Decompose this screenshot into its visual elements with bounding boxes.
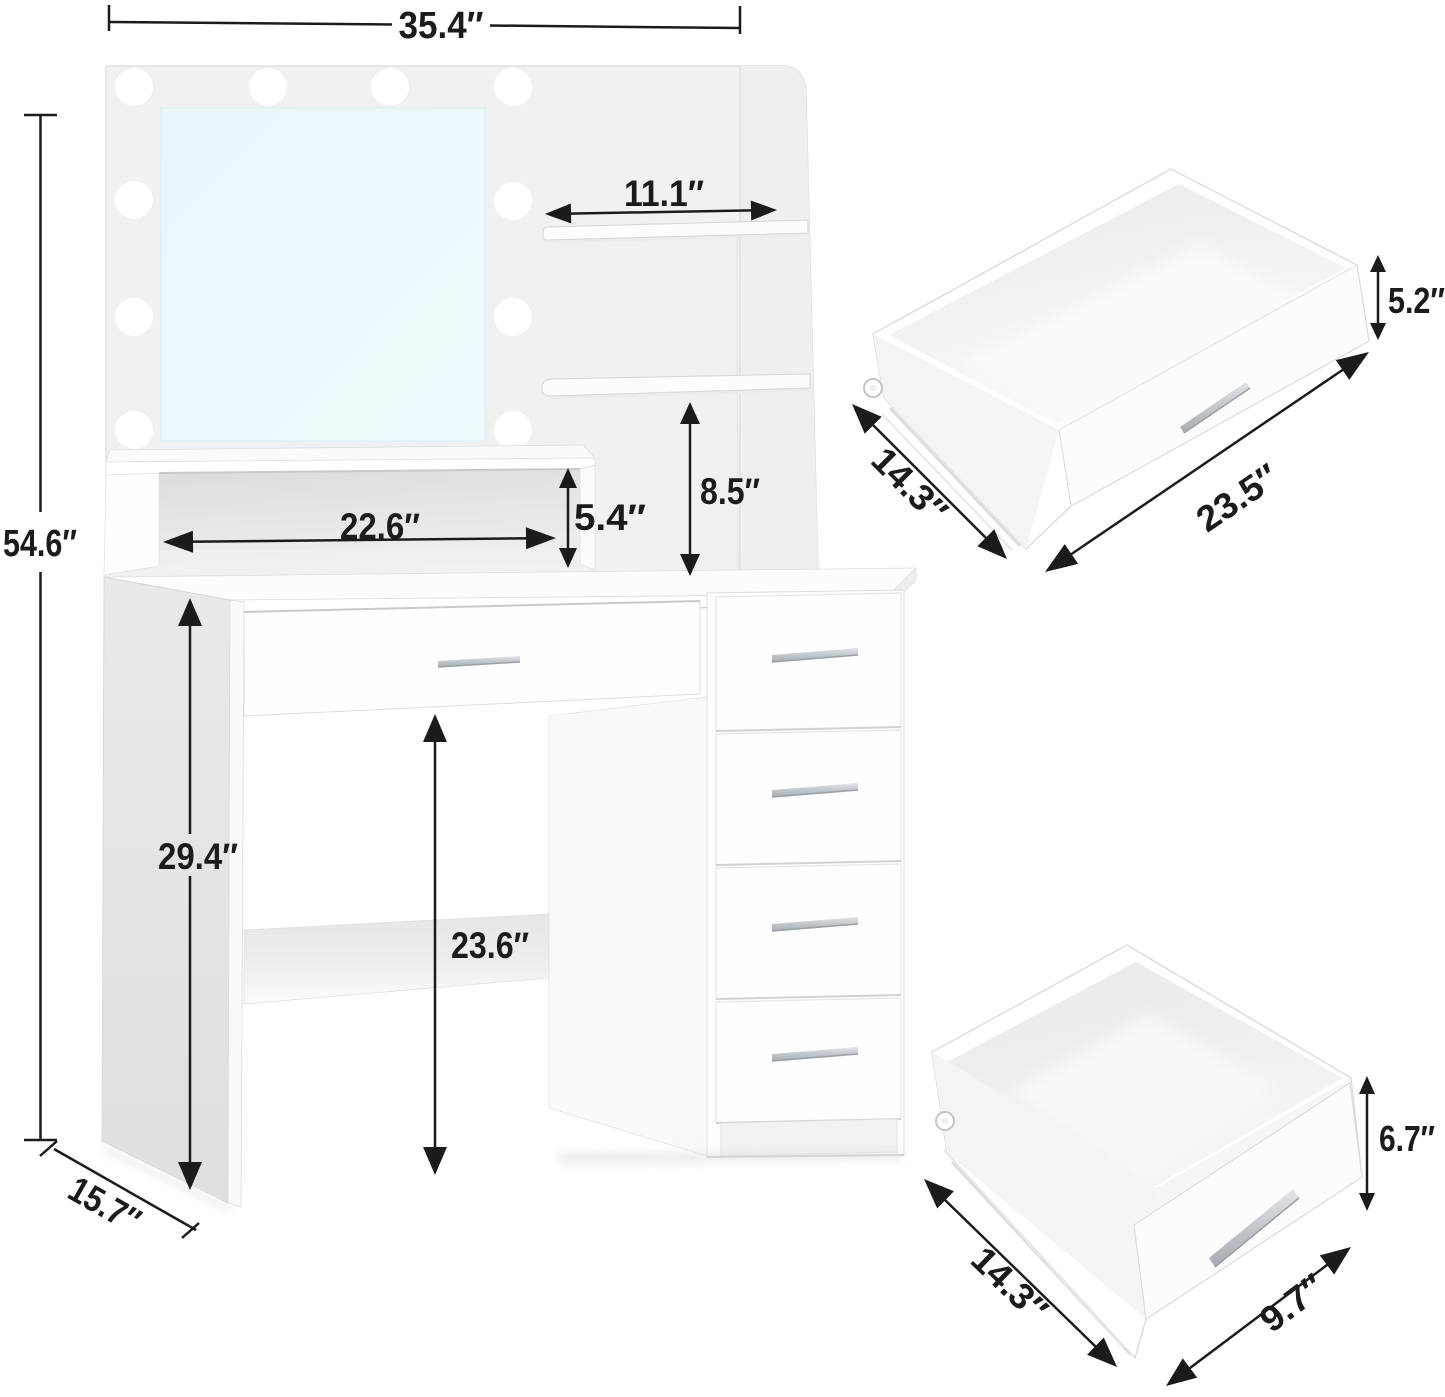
svg-text:54.6″: 54.6″ [3, 523, 77, 565]
svg-text:11.1″: 11.1″ [624, 173, 704, 214]
svg-text:5.2″: 5.2″ [1388, 280, 1445, 321]
svg-text:35.4″: 35.4″ [399, 5, 484, 47]
svg-text:6.7″: 6.7″ [1379, 1118, 1435, 1159]
svg-text:29.4″: 29.4″ [158, 836, 238, 877]
svg-text:23.6″: 23.6″ [451, 925, 529, 966]
svg-text:8.5″: 8.5″ [700, 471, 760, 512]
svg-text:5.4″: 5.4″ [574, 497, 646, 538]
